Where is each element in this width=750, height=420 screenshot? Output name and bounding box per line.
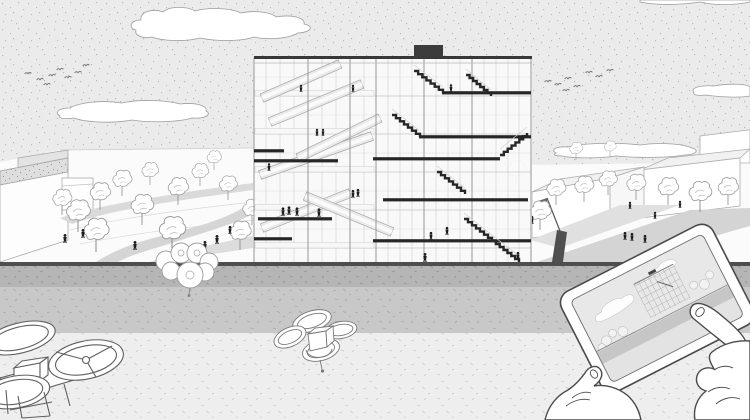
- section-slab: [419, 135, 531, 138]
- cloud-right-edge: [693, 84, 750, 97]
- architectural-illustration: [0, 0, 750, 420]
- section-slab: [373, 157, 500, 160]
- main-building-section: [254, 45, 532, 263]
- section-slab: [254, 149, 284, 152]
- district-left: [0, 148, 262, 263]
- section-slab: [254, 237, 292, 240]
- floor-band: [255, 243, 374, 249]
- illustration-stage: [0, 0, 750, 420]
- section-slab: [254, 159, 338, 162]
- section-slab: [373, 239, 531, 242]
- rooftop-box: [414, 45, 443, 57]
- section-slab: [258, 217, 332, 220]
- section-slab: [383, 198, 528, 201]
- roof-slab: [254, 56, 532, 59]
